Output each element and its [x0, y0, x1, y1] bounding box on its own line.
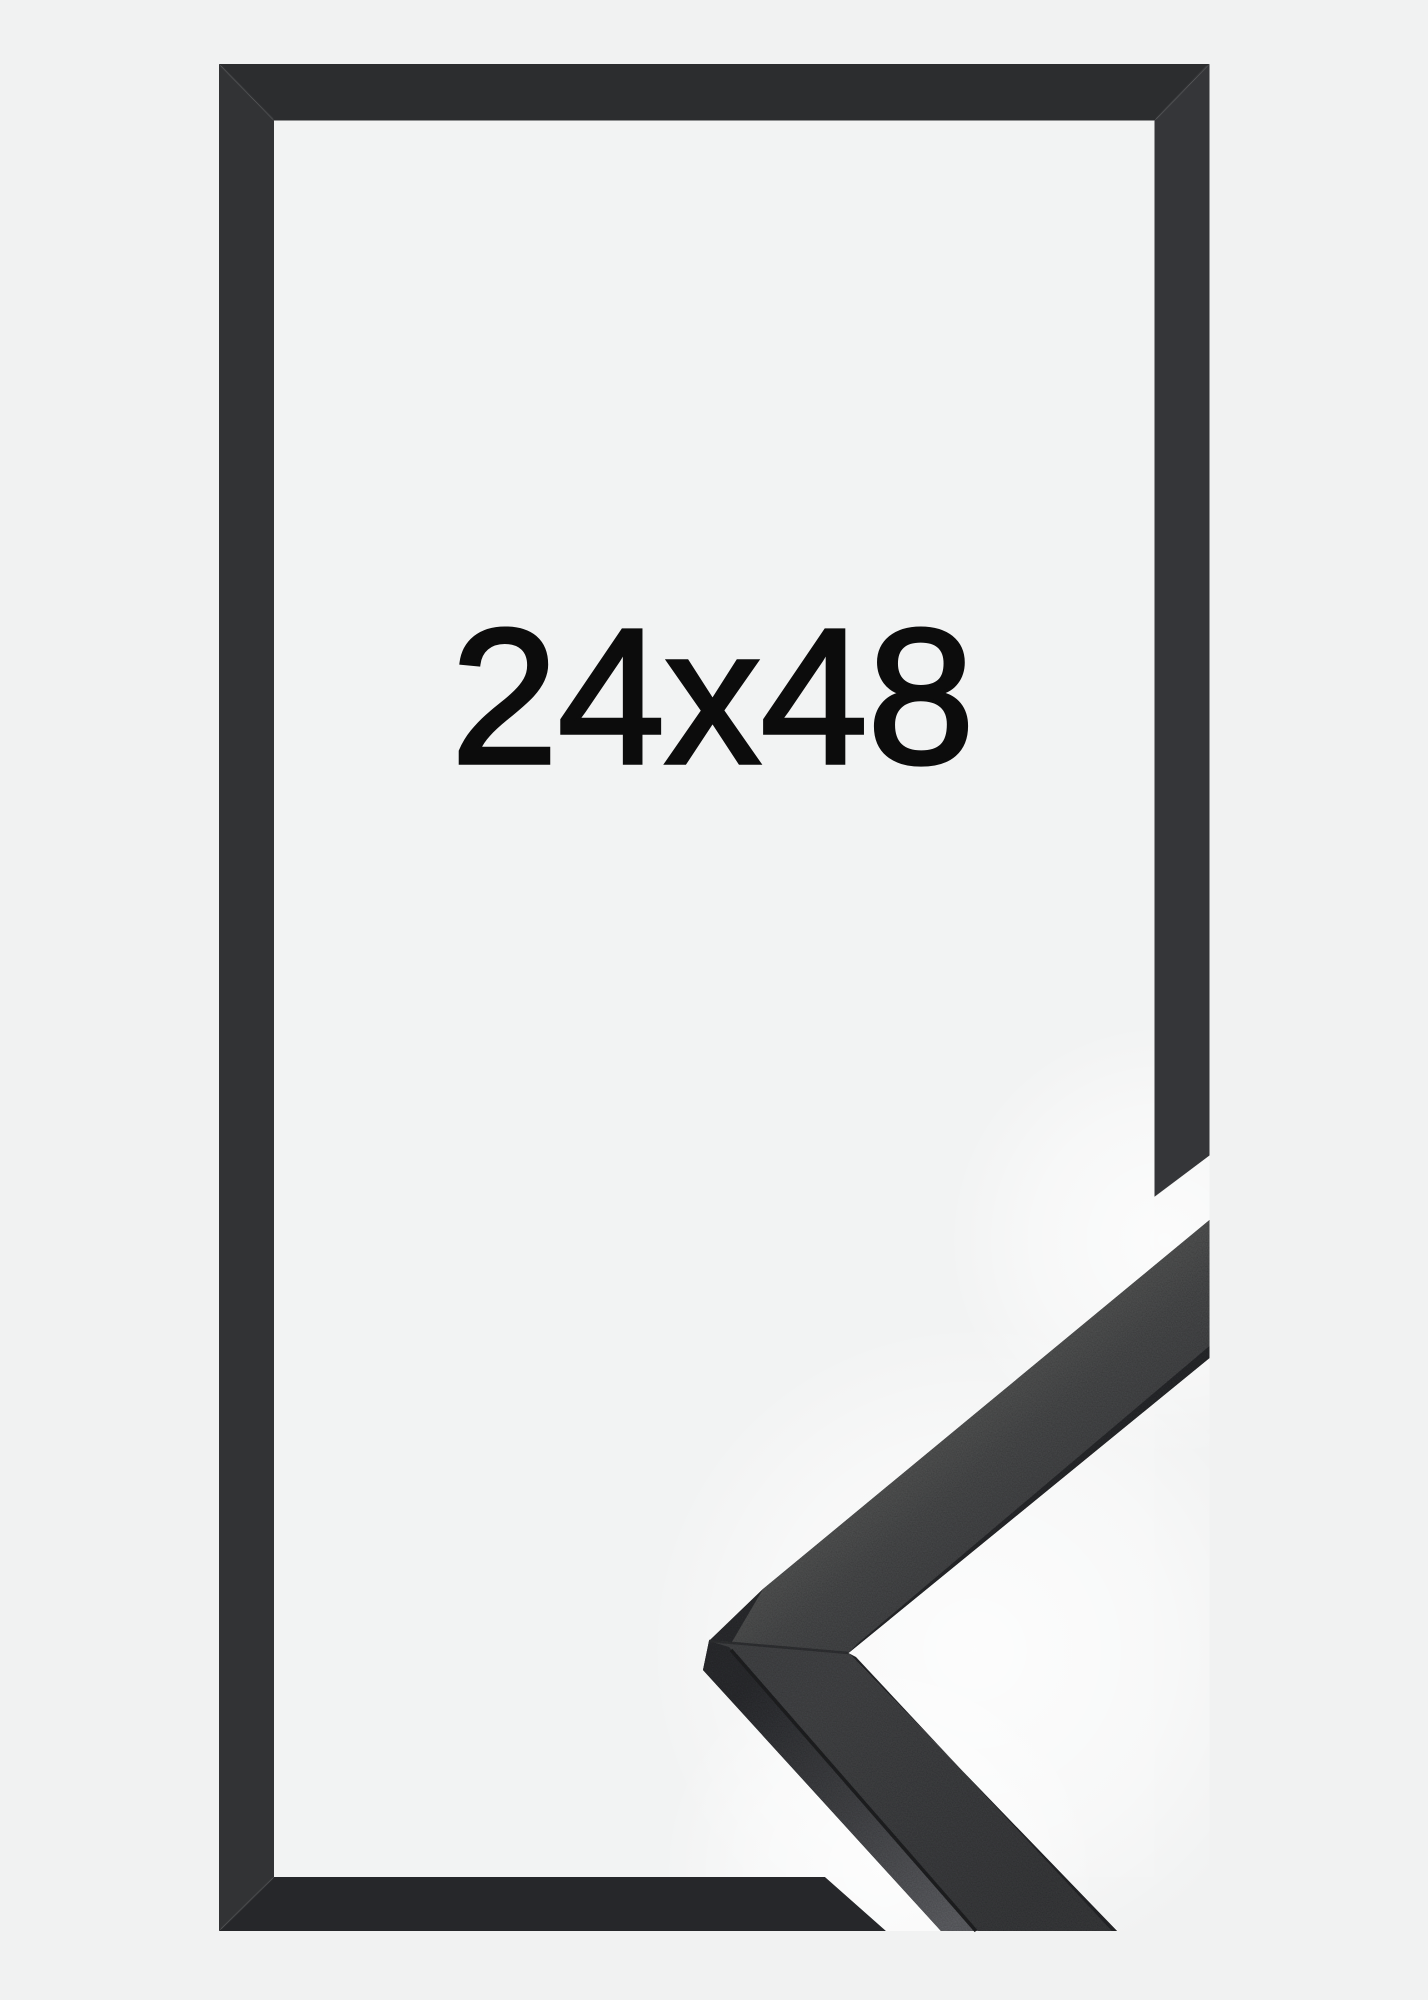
svg-text:24x48: 24x48: [451, 588, 974, 804]
